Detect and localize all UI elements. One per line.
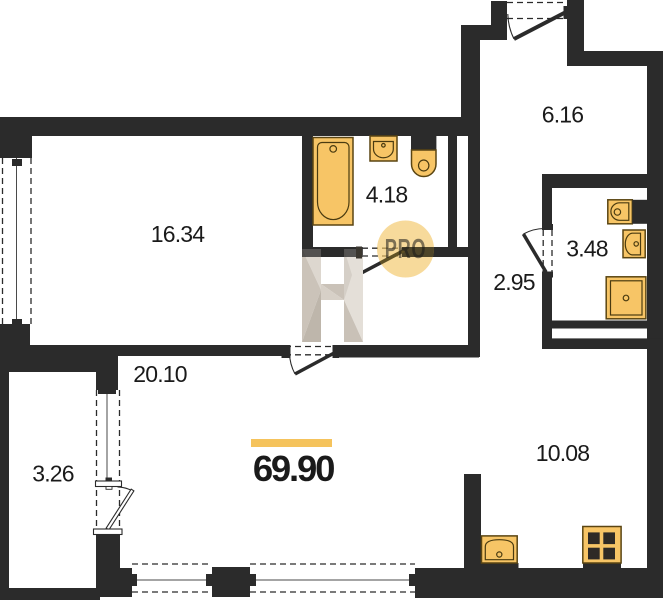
svg-text:3.26: 3.26 xyxy=(32,461,74,487)
svg-text:4.18: 4.18 xyxy=(366,182,408,208)
svg-text:PRO: PRO xyxy=(385,234,426,265)
svg-text:6.16: 6.16 xyxy=(542,102,584,128)
svg-text:10.08: 10.08 xyxy=(536,440,590,466)
svg-text:69.90: 69.90 xyxy=(253,448,334,489)
svg-text:2.95: 2.95 xyxy=(493,269,535,295)
svg-text:16.34: 16.34 xyxy=(151,221,206,247)
svg-text:20.10: 20.10 xyxy=(133,361,187,387)
svg-text:3.48: 3.48 xyxy=(566,236,608,262)
